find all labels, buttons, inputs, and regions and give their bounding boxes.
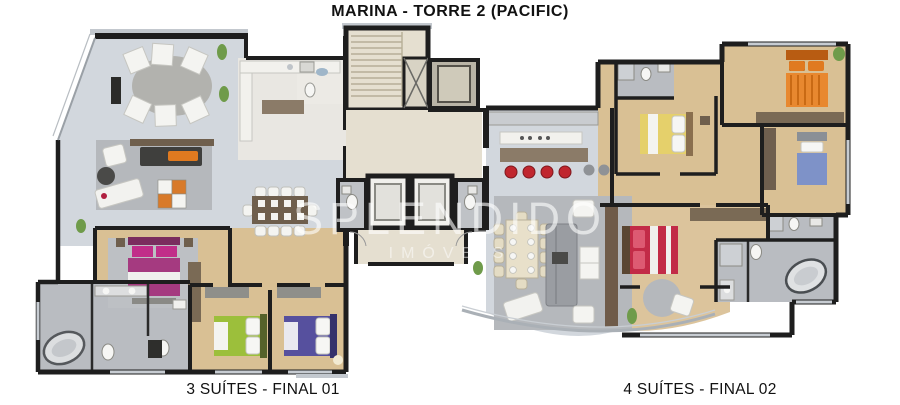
sofa-throw (168, 151, 198, 161)
unit-label-final-02: 4 SUÍTES - FINAL 02 (550, 381, 850, 399)
wc-right (456, 180, 484, 230)
ottoman (97, 167, 115, 185)
floorplan-page: MARINA - TORRE 2 (PACIFIC) (0, 0, 900, 405)
unit-left (38, 29, 348, 378)
bed-magenta (128, 237, 180, 245)
unit-labels: 3 SUÍTES - FINAL 01 4 SUÍTES - FINAL 02 (0, 381, 900, 403)
unit-right (462, 44, 848, 336)
lavabo-sink (316, 68, 328, 76)
armchair-right-1 (573, 200, 594, 217)
elevator-shaft-x (404, 58, 428, 108)
coffee-table-right (580, 247, 599, 279)
elevators-lobby (368, 176, 452, 228)
sofa-right (546, 224, 577, 306)
armchair-right-2 (573, 306, 594, 323)
core (338, 23, 486, 264)
elevator-top (430, 60, 478, 108)
tv-console (605, 207, 618, 327)
lavabo-toilet (305, 83, 315, 97)
coffee-table-checker (158, 180, 186, 208)
terrace-planter (111, 77, 121, 104)
console (130, 139, 214, 146)
core-hall (346, 110, 482, 178)
entry-lobby (350, 230, 472, 264)
unit-label-final-01: 3 SUÍTES - FINAL 01 (113, 381, 413, 399)
floor-plan (0, 0, 900, 405)
chaise-pillow (101, 193, 107, 199)
wc-left (338, 180, 366, 230)
bed-green-pillows (246, 318, 260, 335)
